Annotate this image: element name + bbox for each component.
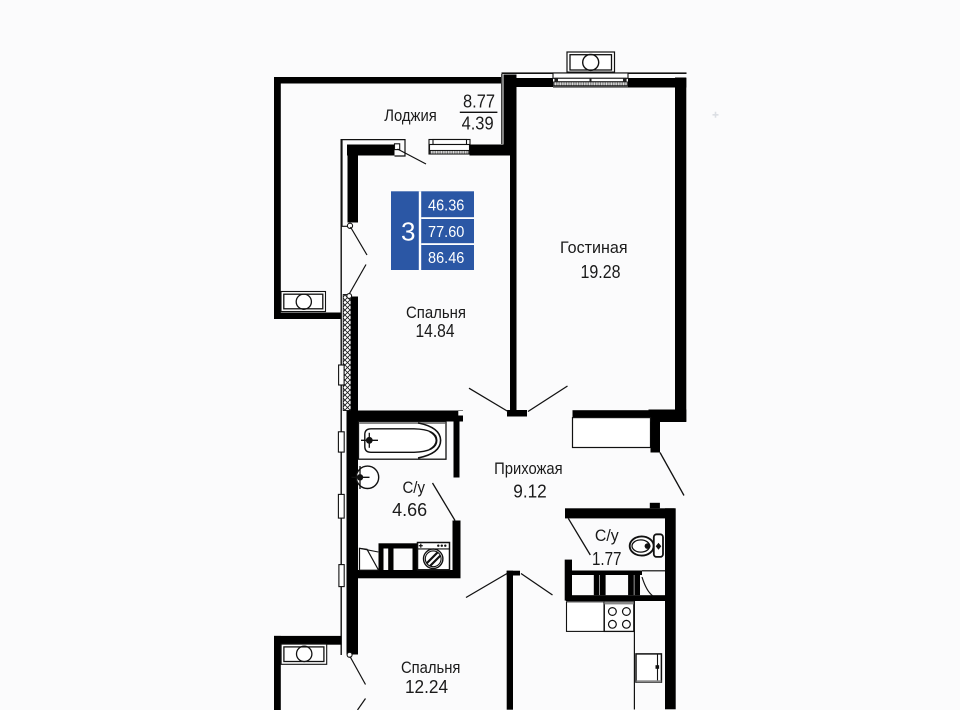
svg-text:46.36: 46.36 <box>428 198 464 215</box>
svg-text:77.60: 77.60 <box>428 224 464 241</box>
svg-text:Спальня: Спальня <box>401 658 461 677</box>
svg-text:86.46: 86.46 <box>428 250 464 267</box>
svg-text:8.77: 8.77 <box>463 91 495 111</box>
svg-text:Лоджия: Лоджия <box>384 106 437 125</box>
svg-text:С/у: С/у <box>402 478 425 497</box>
svg-text:4.66: 4.66 <box>392 500 427 520</box>
svg-text:9.12: 9.12 <box>513 481 547 501</box>
svg-text:Гостиная: Гостиная <box>560 238 628 257</box>
svg-text:Прихожая: Прихожая <box>494 459 563 478</box>
svg-text:С/у: С/у <box>595 526 619 545</box>
svg-text:14.84: 14.84 <box>416 321 455 341</box>
svg-text:1.77: 1.77 <box>592 549 622 569</box>
svg-text:Спальня: Спальня <box>406 303 466 322</box>
svg-text:3: 3 <box>401 216 415 246</box>
svg-text:4.39: 4.39 <box>462 114 494 134</box>
svg-text:19.28: 19.28 <box>581 262 621 282</box>
svg-text:12.24: 12.24 <box>405 677 448 697</box>
